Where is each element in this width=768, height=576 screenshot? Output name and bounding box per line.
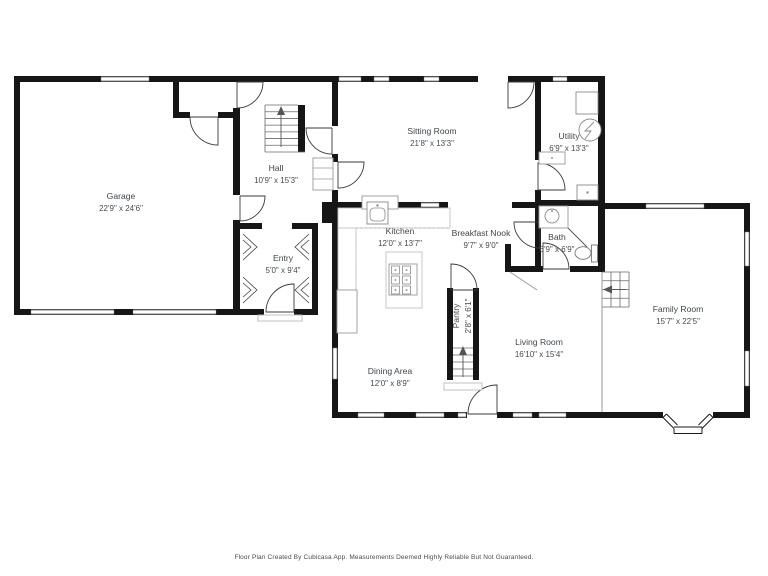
door-arc [240,196,265,221]
wall-segment [332,190,338,202]
wall-segment [505,266,543,272]
bifold-door [243,283,251,297]
room-dims-sitting-room: 21'8" x 13'3" [410,139,454,148]
wall-segment [14,309,30,315]
porch-step [258,315,302,321]
door-arc [338,162,364,188]
wall-segment [533,412,538,418]
burner-dot [395,279,397,281]
door-arc [508,82,534,108]
wall-segment [445,412,457,418]
wall-segment [292,223,318,229]
wall-segment [535,190,541,200]
room-label-pantry: Pantry [451,303,461,329]
doors-layer [190,82,569,414]
wall-segment [173,82,179,112]
burner-dot [406,289,408,291]
toilet-tank [592,245,598,262]
wall-segment [332,412,357,418]
door-arc [266,284,294,312]
wall-segment [322,202,338,223]
wall-segment [298,105,305,152]
burner-dot [395,269,397,271]
kitchen-sink-basin [370,208,385,221]
room-dims-bath: 6'9" x 6'9" [540,245,575,254]
kitchen-counter [338,208,450,228]
room-label-bath: Bath [548,232,566,242]
wall-segment [115,309,132,315]
wall-segment [338,202,365,208]
wall-segment [568,76,605,82]
wall-segment [705,203,750,209]
bifold-door [243,240,251,254]
door-arc [237,82,263,108]
room-dims-hall: 10'9" x 15'3" [254,176,298,185]
room-label-entry: Entry [273,253,294,263]
bifold-door [295,277,309,303]
wall-segment [473,288,479,380]
floorplan-canvas: Garage 22'9" x 24'6" Hall 10'9" x 15'3" … [0,0,768,576]
burner-dot [406,279,408,281]
room-label-living-room: Living Room [515,337,563,347]
footer-disclaimer: Floor Plan Created By Cubicasa App. Meas… [0,554,768,561]
wall-segment [535,82,541,160]
bifold-door [295,234,309,260]
room-dims-dining-area: 12'0" x 8'9" [370,379,410,388]
door-arc [190,117,218,145]
wall-segment [440,76,478,82]
wall-segment [395,202,420,208]
wall-segment [218,112,237,118]
wall-segment [598,82,605,272]
wall-segment [233,220,240,315]
wall-segment [570,266,605,272]
room-label-nook: Breakfast Nook [452,228,511,238]
room-dims-kitchen: 12'0" x 13'7" [378,239,422,248]
room-dims-garage: 22'9" x 24'6" [99,204,143,213]
room-label-family-room: Family Room [653,304,704,314]
room-label-utility: Utility [558,131,580,141]
wall-segment [535,76,552,82]
wall-segment [508,76,535,82]
wall-segment [385,412,415,418]
bifold-door [243,277,257,303]
burner-dot [406,269,408,271]
room-dims-utility: 6'9" x 13'3" [549,144,589,153]
wall-segment [312,229,318,315]
wall-segment [240,76,338,82]
room-label-dining-area: Dining Area [368,366,413,376]
stairs-up-arrowhead [277,106,285,115]
wall-segment [14,76,100,82]
wall-segment [233,76,240,82]
toilet-bowl [575,247,591,260]
fridge [337,290,357,333]
wall-segment [713,412,750,418]
room-label-kitchen: Kitchen [386,226,415,236]
counter-dot [551,157,553,159]
hall-closet [313,158,333,190]
door-arc [306,128,332,154]
room-label-garage: Garage [107,191,136,201]
room-dims-living-room: 16'10" x 15'4" [515,350,563,359]
room-label-pantry-group: Pantry 2'8" x 6'1" [451,298,473,333]
wall-segment [505,244,511,266]
wall-segment [362,76,373,82]
wall-segment [240,223,262,229]
electrical-panel-icon [579,119,601,141]
wall-segment [567,412,663,418]
utility-appliance [576,92,598,114]
wall-segment [605,203,645,209]
room-dims-pantry: 2'8" x 6'1" [464,298,473,333]
floorplan-svg: Garage 22'9" x 24'6" Hall 10'9" x 15'3" … [0,0,768,576]
door-arc [451,264,477,290]
wall-segment [14,76,20,315]
wall-segment [744,267,750,350]
wall-segment [332,82,338,126]
wall-segment [150,76,240,82]
bay-window [663,414,713,434]
room-dims-nook: 9'7" x 9'0" [464,241,499,250]
wall-segment [535,200,605,206]
kitchen-counter [338,228,356,290]
door-arc [538,163,565,190]
steps-down-arrowhead [603,286,612,294]
bifold-door [301,240,309,254]
stairs-up-arrowhead [459,346,467,355]
wall-segment [447,288,453,380]
sink-dot [586,191,588,193]
wall-segment [440,202,448,208]
wall-segment [173,112,190,118]
room-label-sitting-room: Sitting Room [407,126,456,136]
bifold-door [243,234,257,260]
wall-segment [497,412,512,418]
room-dims-entry: 5'0" x 9'4" [266,266,301,275]
faucet-dot [376,204,378,206]
burner-dot [395,289,397,291]
opening-divider [510,272,537,290]
wall-segment [217,309,264,315]
basement-landing [444,383,482,390]
bifold-door [301,283,309,297]
wall-segment [233,108,240,195]
faucet-dot [551,210,553,212]
wall-segment [390,76,423,82]
room-label-hall: Hall [269,163,284,173]
wall-segment [744,203,750,231]
room-dims-family-room: 15'7" x 22'5" [656,317,700,326]
